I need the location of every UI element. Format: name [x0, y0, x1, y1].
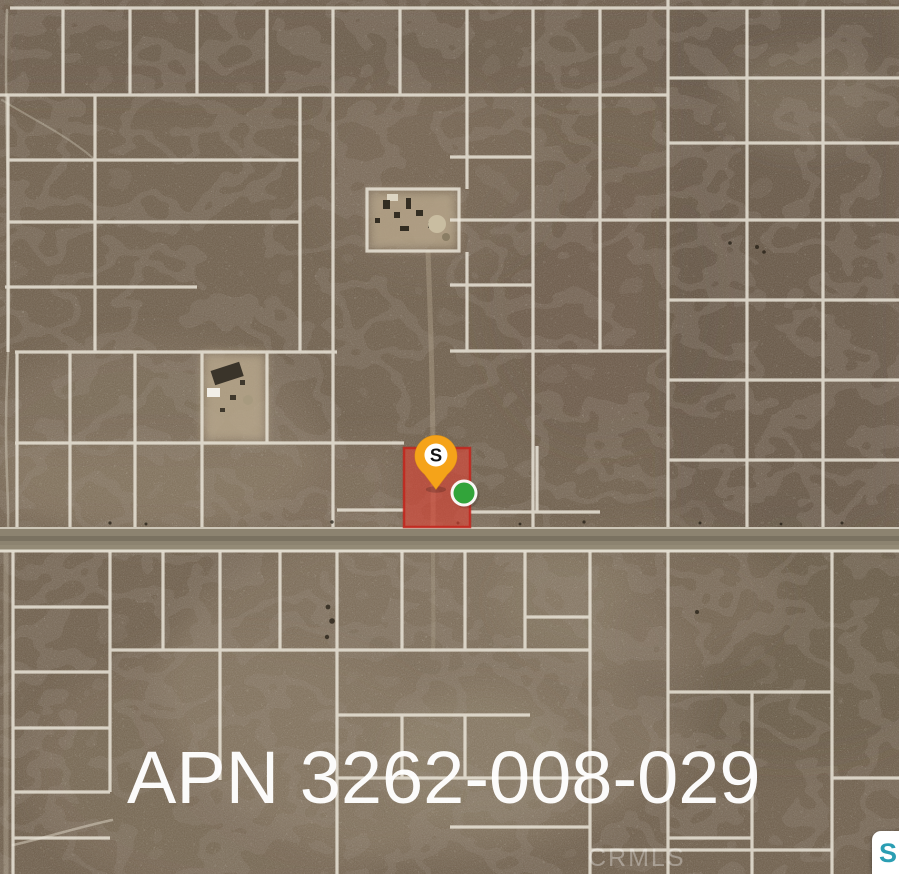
building-compound-west [203, 353, 266, 441]
satellite-parcel-map[interactable]: S APN 3262-008-029 CRMLS S [0, 0, 899, 874]
green-dot-fill [454, 483, 475, 504]
road [0, 527, 899, 552]
logo-badge-letter: S [879, 838, 897, 869]
building-compound-north [369, 191, 457, 249]
logo-badge[interactable]: S [872, 831, 899, 874]
pin-letter: S [430, 444, 442, 465]
parcel-map-svg: S [0, 0, 899, 874]
